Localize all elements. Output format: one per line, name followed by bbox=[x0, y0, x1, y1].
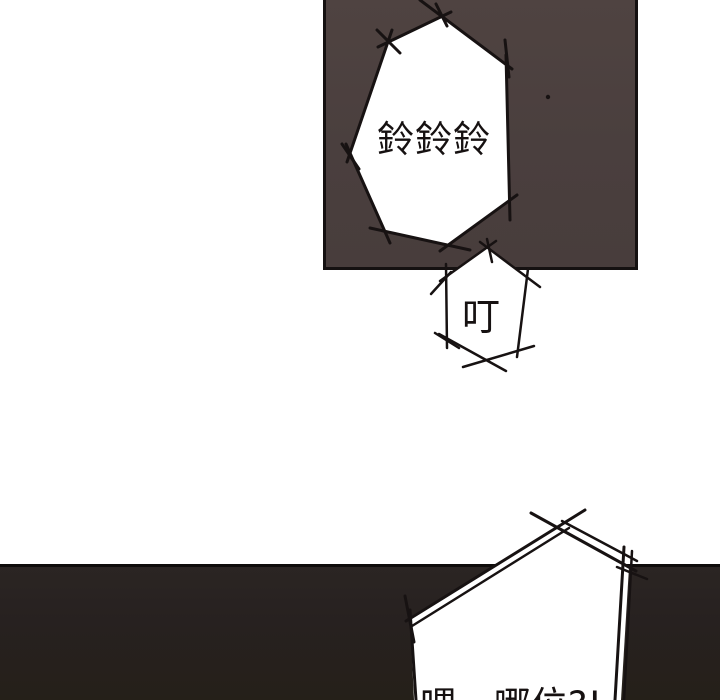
speech-text-phone: 喂，哪位?! bbox=[420, 684, 602, 700]
sfx-text-ding: 叮 bbox=[462, 295, 500, 339]
speech-bubble-phone-body bbox=[410, 527, 629, 700]
bubble-layer: 鈴鈴鈴 叮 bbox=[0, 0, 720, 700]
sfx-text-ring: 鈴鈴鈴 bbox=[377, 118, 491, 161]
ink-speck bbox=[546, 95, 550, 99]
sfx-bubble-ring: 鈴鈴鈴 bbox=[342, 0, 517, 251]
comic-page: 鈴鈴鈴 叮 bbox=[0, 0, 720, 700]
speech-bubble-phone: 喂，哪位?! bbox=[405, 510, 647, 700]
sfx-bubble-ding: 叮 bbox=[431, 239, 540, 371]
